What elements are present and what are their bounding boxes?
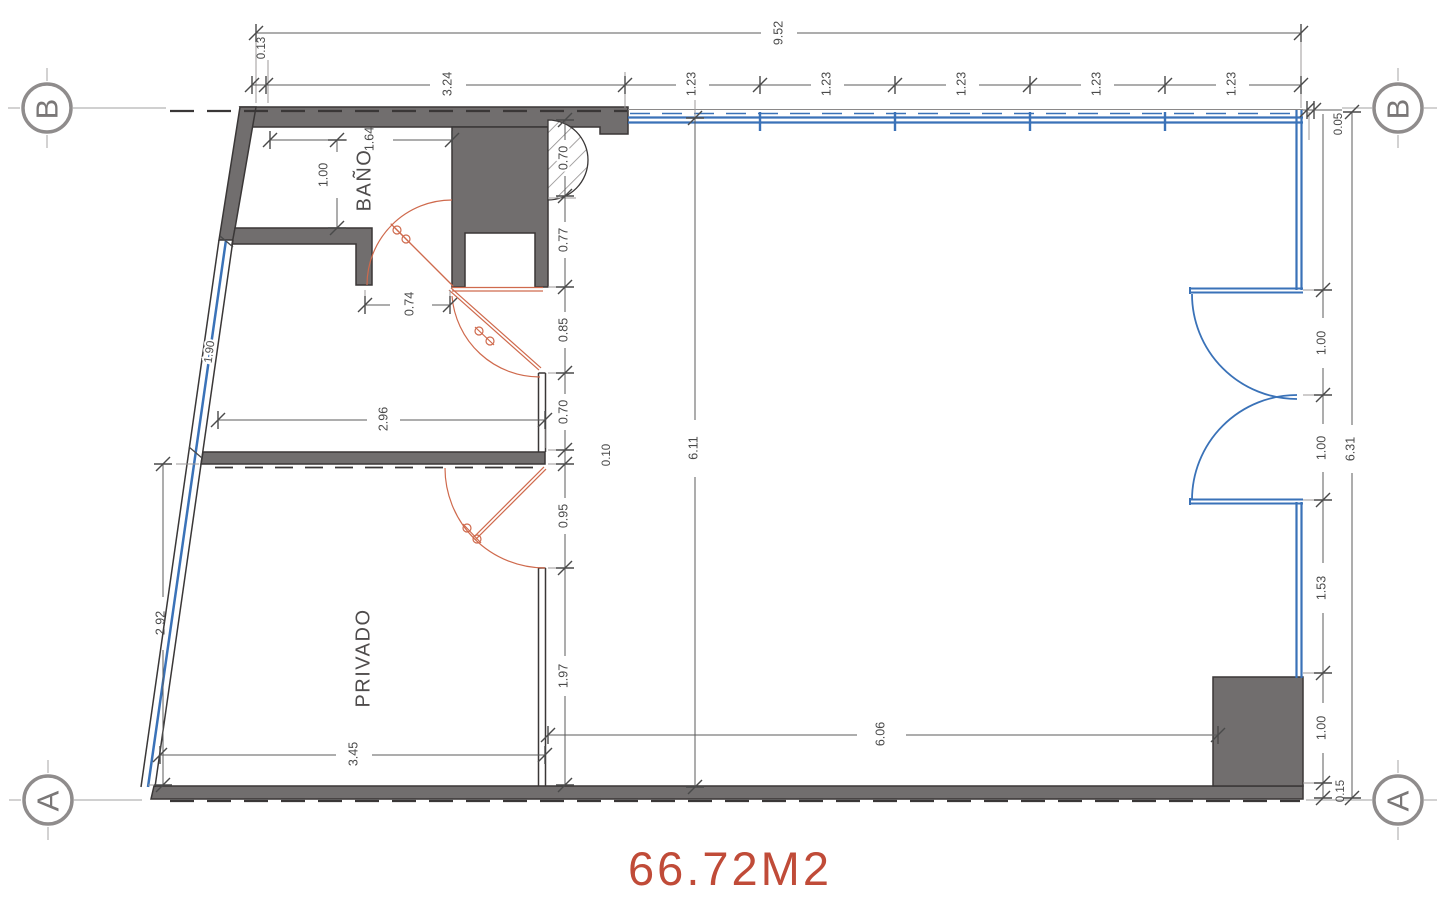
dim-top-overall: 9.52 0.13 (249, 21, 1308, 59)
floor-plan-page: B B A A (0, 0, 1445, 924)
svg-text:1.23: 1.23 (684, 72, 698, 96)
svg-text:6.31: 6.31 (1343, 437, 1357, 461)
svg-text:1.00: 1.00 (1314, 716, 1328, 740)
svg-text:2.92: 2.92 (153, 611, 167, 635)
dim-private-width: 3.45 (153, 742, 552, 766)
dim-right-overall: 6.31 (1343, 105, 1361, 805)
double-door-right (1190, 287, 1303, 505)
svg-text:6.11: 6.11 (686, 436, 700, 459)
svg-text:1.64: 1.64 (362, 127, 376, 151)
svg-text:1.23: 1.23 (1224, 72, 1238, 96)
dim-main-width: 6.06 (541, 722, 1225, 746)
svg-text:1.00: 1.00 (316, 163, 330, 187)
grid-bubble-b-left: B (8, 68, 166, 148)
wall-left-upper-slanted (219, 107, 256, 240)
dim-top-segments: 3.24 1.23 1.23 1.23 1.23 1.23 (245, 72, 1308, 96)
wall-column-bottom-right (1213, 677, 1303, 786)
svg-text:1.97: 1.97 (556, 664, 570, 688)
svg-text:1.00: 1.00 (1314, 331, 1328, 355)
grid-letter: A (31, 790, 66, 811)
grid-bubble-a-right: A (1306, 760, 1437, 840)
door-swing-private (445, 467, 546, 568)
svg-text:1.23: 1.23 (1089, 72, 1103, 96)
grid-letter: B (1381, 99, 1416, 120)
glass-wall-right (1297, 110, 1302, 678)
svg-text:1.00: 1.00 (1314, 436, 1328, 460)
door-swing-hall (449, 288, 543, 378)
svg-text:0.05: 0.05 (1333, 113, 1345, 135)
window-wall-left-slanted (141, 240, 233, 787)
dimensions: 9.52 0.13 3.24 1.23 1.23 1.23 1.23 1.23 … (148, 21, 1361, 805)
door-swing-arc-upper (1192, 294, 1297, 399)
wall-bathroom-l (232, 228, 372, 285)
glass-walls (628, 110, 1303, 679)
grid-bubble-a-left: A (9, 760, 142, 840)
svg-text:1.53: 1.53 (1314, 576, 1328, 600)
wall-bottom (151, 786, 1303, 799)
svg-text:3.24: 3.24 (440, 72, 454, 96)
door-swing-arc-lower (1192, 395, 1297, 500)
wall-center-block (452, 127, 548, 287)
svg-text:0.77: 0.77 (556, 228, 570, 252)
svg-text:2.96: 2.96 (376, 407, 390, 431)
svg-text:0.70: 0.70 (556, 400, 570, 424)
svg-text:1.23: 1.23 (819, 72, 833, 96)
floor-plan-drawing: B B A A (0, 0, 1445, 924)
svg-text:0.13: 0.13 (256, 37, 268, 59)
glazing-line-left (148, 240, 226, 787)
door-swing-bathroom (367, 200, 453, 286)
wall-interior-partition (201, 452, 545, 464)
dim-hall-width: 2.96 (211, 407, 552, 431)
area-label: 66.72M2 (628, 842, 832, 895)
svg-text:0.95: 0.95 (556, 504, 570, 528)
walls (151, 107, 1303, 799)
dim-interior-height: 6.11 (686, 111, 704, 794)
extension-lines (148, 25, 1314, 785)
dim-right-chain: 1.00 1.00 1.53 1.00 0.15 (1314, 114, 1347, 805)
room-label-bathroom: BAÑO (351, 149, 375, 212)
svg-text:0.70: 0.70 (556, 146, 570, 170)
svg-text:9.52: 9.52 (771, 21, 785, 45)
svg-text:1.23: 1.23 (954, 72, 968, 96)
svg-text:0.10: 0.10 (601, 444, 613, 466)
grid-letter: B (30, 99, 65, 120)
dim-middle-chain: 0.70 0.77 0.85 0.70 0.10 0.95 1.97 (556, 113, 613, 792)
partition-thin-walls (539, 373, 546, 786)
room-label-private: PRIVADO (352, 608, 374, 707)
svg-text:0.74: 0.74 (402, 292, 416, 316)
grid-letter: A (1381, 790, 1416, 811)
svg-text:3.45: 3.45 (346, 742, 360, 766)
svg-text:6.06: 6.06 (873, 722, 887, 746)
svg-text:0.85: 0.85 (556, 318, 570, 342)
svg-text:0.15: 0.15 (1335, 780, 1347, 802)
